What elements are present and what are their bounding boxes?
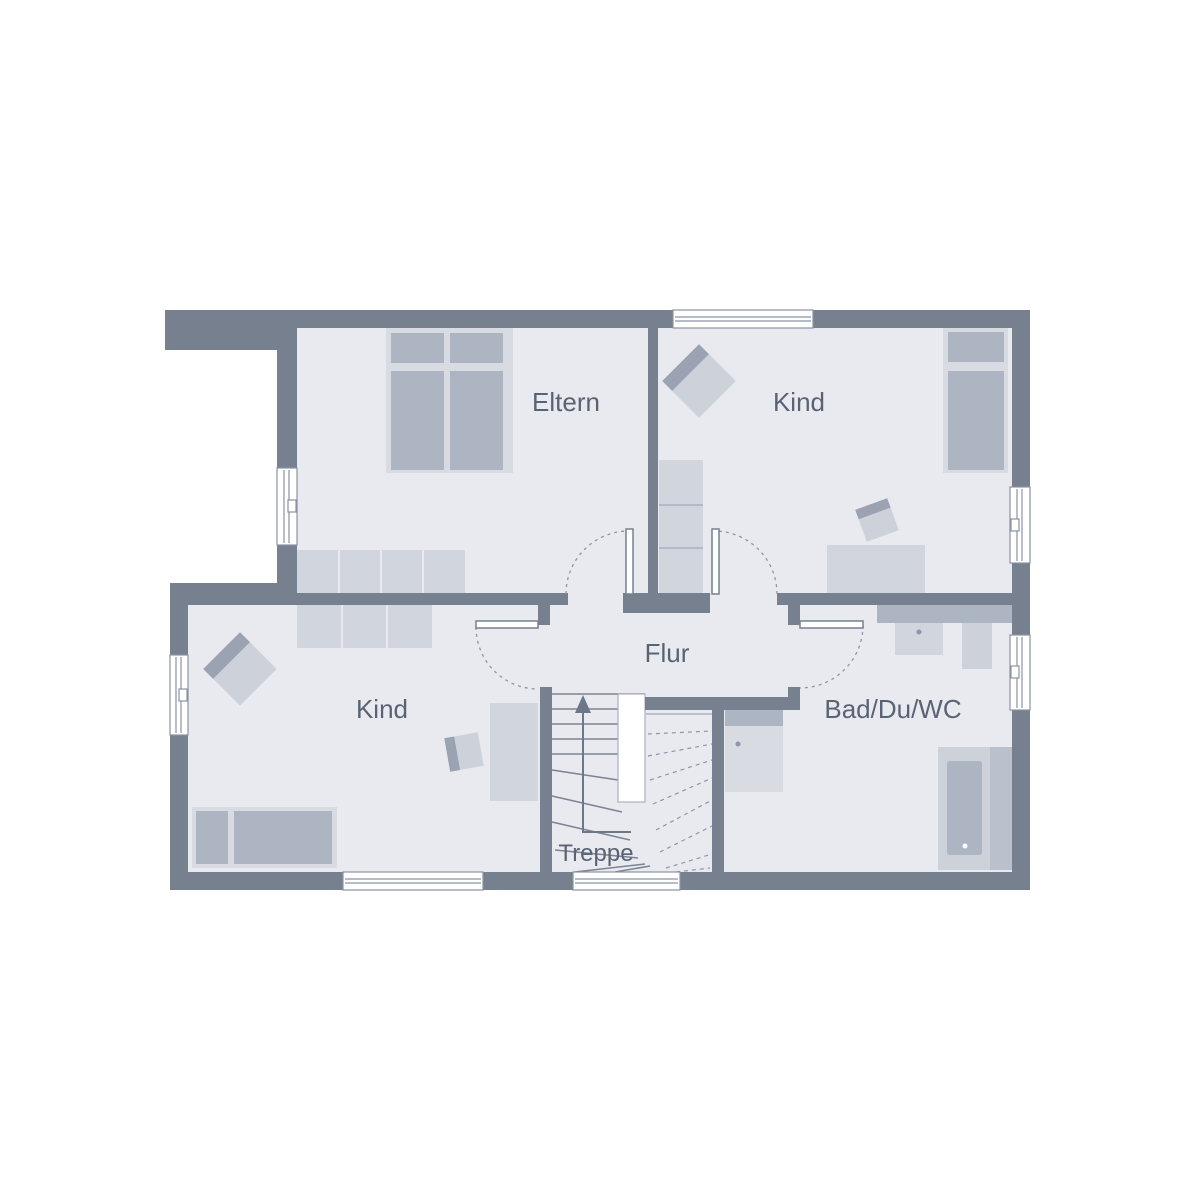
window-kind-north	[673, 310, 813, 328]
stair-newel	[618, 694, 645, 802]
kind-bottom-bed	[192, 807, 337, 868]
wing-wall	[165, 328, 277, 350]
window-kind-south	[343, 872, 483, 890]
floorplan-canvas: Eltern Kind Kind Flur Bad/Du/WC Treppe	[0, 0, 1200, 1200]
room-label-bad: Bad/Du/WC	[824, 694, 961, 724]
bath-sink	[895, 623, 943, 655]
kind-top-bed	[943, 328, 1008, 473]
door-leaf	[800, 621, 863, 628]
floorplan-drawing: Eltern Kind Kind Flur Bad/Du/WC Treppe	[0, 0, 1200, 1200]
window-stairs-south	[573, 872, 680, 890]
window-kind-east	[1010, 487, 1030, 563]
toilet	[725, 710, 783, 792]
kind-bottom-desk	[490, 703, 538, 801]
room-label-kind-top: Kind	[773, 387, 825, 417]
room-label-treppe: Treppe	[558, 840, 633, 867]
kind-bottom-wardrobe	[297, 605, 432, 648]
window-kind-west	[170, 655, 188, 735]
kind-bottom-chair	[444, 732, 483, 771]
window-eltern-west	[277, 468, 297, 545]
window-bad-east	[1010, 635, 1030, 710]
pillow	[450, 333, 503, 363]
bath-counter	[877, 605, 1012, 623]
eltern-wardrobe	[297, 550, 465, 593]
bath-unit	[962, 623, 992, 669]
door-leaf	[476, 621, 538, 628]
blanket	[948, 371, 1004, 470]
bathtub	[938, 747, 1012, 870]
eltern-bed	[386, 328, 513, 473]
pillow	[391, 333, 444, 363]
blanket	[391, 371, 444, 470]
kind-top-shelf	[659, 460, 703, 593]
pillow	[196, 811, 228, 864]
pillow	[948, 332, 1004, 362]
door-leaf	[712, 529, 719, 594]
kind-top-desk	[827, 545, 925, 593]
blanket	[450, 371, 503, 470]
room-label-flur: Flur	[645, 638, 690, 668]
cistern	[725, 710, 783, 726]
drain	[963, 844, 968, 849]
room-label-kind-bottom: Kind	[356, 694, 408, 724]
room-label-eltern: Eltern	[532, 387, 600, 417]
door-leaf	[626, 529, 633, 594]
blanket	[234, 811, 332, 864]
